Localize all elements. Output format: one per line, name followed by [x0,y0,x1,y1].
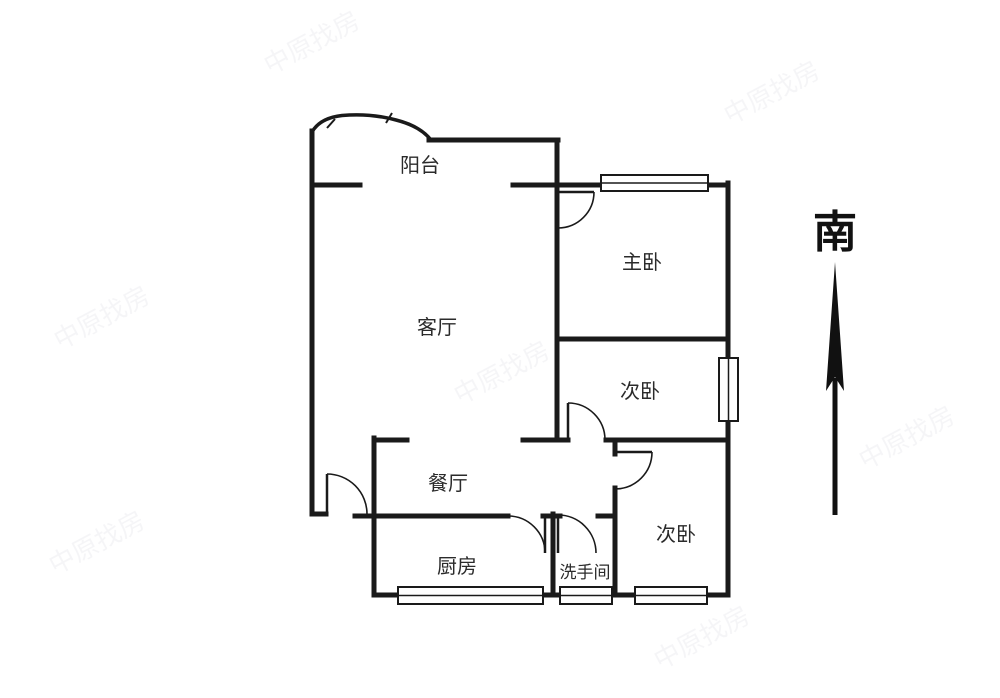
room-label-kitchen: 厨房 [437,555,477,578]
window-middle-bedroom [719,358,738,421]
room-label-bottom-bedroom: 次卧 [656,523,696,546]
room-label-living-room: 客厅 [417,316,457,339]
room-label-middle-bedroom: 次卧 [620,380,660,403]
middle-bedroom-door [568,403,605,440]
watermark-text: 中原找房 [259,5,365,80]
compass: 南 [813,208,857,515]
watermark-text: 中原找房 [719,55,825,130]
watermark-text: 中原找房 [649,600,755,675]
bottom-bedroom-door [615,452,652,489]
kitchen-door [508,516,545,553]
floor-plan-page: 中原找房 中原找房 中原找房 中原找房 中原找房 中原找房 中原找房 [0,0,1000,698]
room-label-dining-room: 餐厅 [428,472,468,495]
south-arrow [826,262,844,515]
room-label-master-bedroom: 主卧 [622,251,662,274]
room-label-balcony: 阳台 [400,154,440,177]
bathroom-door [558,515,596,553]
watermark-text: 中原找房 [44,505,150,580]
entry-door [327,474,367,514]
watermark-text: 中原找房 [49,280,155,355]
master-bedroom-door [558,192,594,228]
window-bathroom [560,587,612,604]
compass-label: 南 [813,208,857,257]
balcony-curved-wall [312,115,431,140]
watermark-text: 中原找房 [854,400,960,475]
window-master-bedroom [601,175,708,191]
window-kitchen [398,587,543,604]
watermark-text: 中原找房 [449,335,555,410]
window-bottom-bedroom [635,587,707,604]
room-label-bathroom: 洗手间 [560,563,611,582]
watermark-layer: 中原找房 中原找房 中原找房 中原找房 中原找房 中原找房 中原找房 [44,5,960,675]
floor-plan: 中原找房 中原找房 中原找房 中原找房 中原找房 中原找房 中原找房 [0,0,1000,698]
